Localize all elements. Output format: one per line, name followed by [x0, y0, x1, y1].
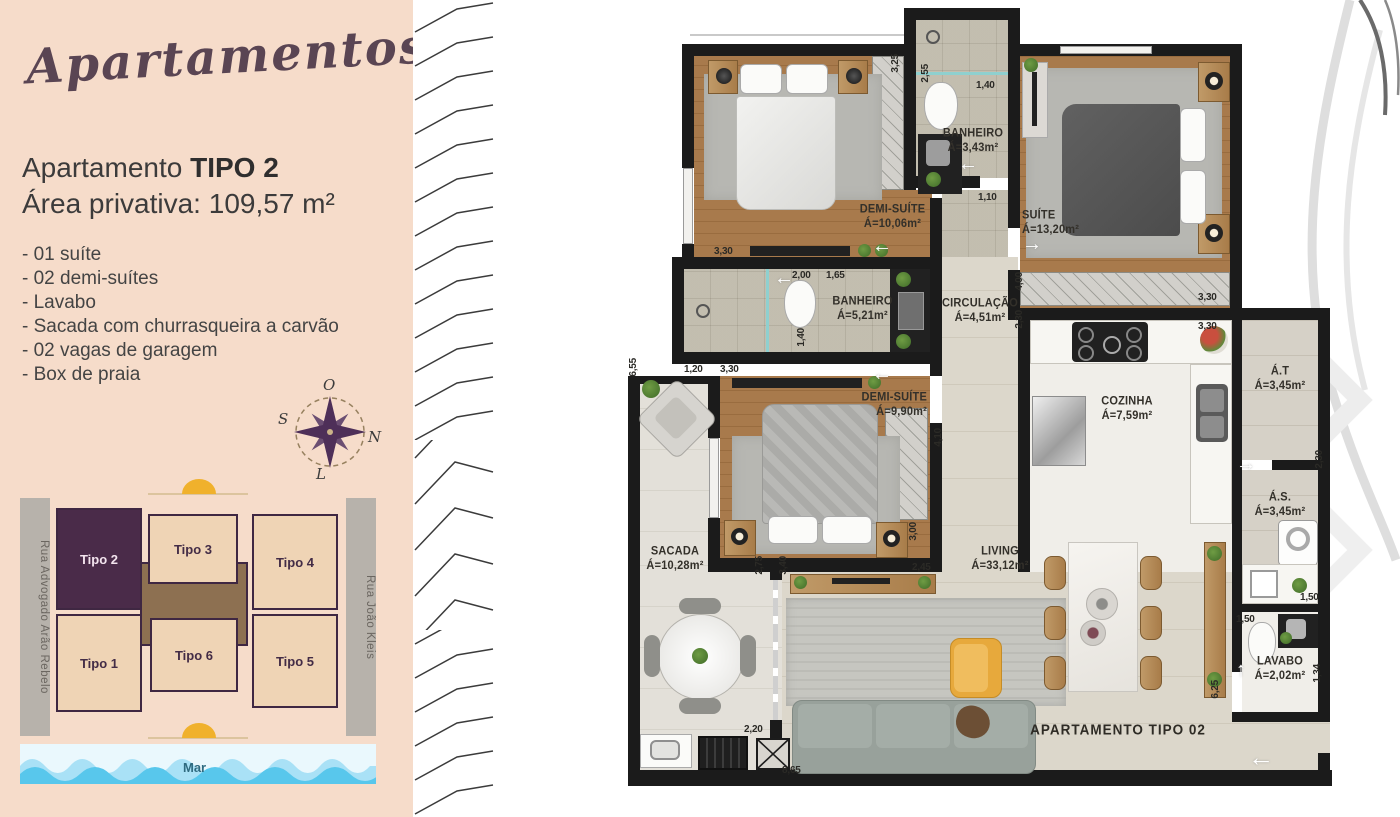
street-right-label: Rua João Kleis — [346, 498, 376, 736]
washer-door-icon — [1286, 527, 1310, 551]
door-arrow-icon: → — [1236, 454, 1256, 474]
pillow — [1180, 108, 1206, 162]
room-label-demi-suite-1: DEMI-SUÍTE Á=10,06m² — [850, 202, 935, 231]
plant-icon — [794, 576, 807, 589]
building-label: Tipo 5 — [276, 654, 314, 669]
sink-basin — [1200, 389, 1224, 412]
wall — [1232, 712, 1330, 722]
room-area: Á=4,51m² — [938, 311, 1022, 326]
wall — [708, 376, 720, 438]
dim-label: 3,25 — [890, 54, 901, 73]
tv-rack — [790, 574, 936, 594]
chair — [740, 635, 756, 677]
dim-label: 4,10 — [933, 428, 944, 447]
dim-label: 1,50 — [1236, 614, 1255, 625]
room-label-demi-suite-2: DEMI-SUÍTE Á=9,90m² — [845, 390, 927, 419]
lamp-icon — [1205, 224, 1223, 242]
room-name: LAVABO — [1238, 654, 1322, 669]
bed — [736, 96, 836, 210]
wall — [1008, 308, 1330, 320]
shower-glass — [766, 269, 769, 352]
bowl-icon — [1086, 588, 1118, 620]
chair — [1140, 606, 1162, 640]
room-area: Á=7,59m² — [1072, 409, 1182, 424]
compass-rose-icon — [285, 387, 375, 477]
dim-label: 1,34 — [1312, 664, 1323, 683]
dim-label: 2,75 — [754, 556, 765, 575]
wall — [1318, 753, 1330, 786]
plant-icon — [896, 272, 911, 287]
wall — [682, 257, 932, 269]
page: Apartamentos Apartamento TIPO 2 Área pri… — [0, 0, 1400, 817]
building-tipo-3[interactable]: Tipo 3 — [148, 514, 238, 584]
feature-list: - 01 suíte - 02 demi-suítes - Lavabo - S… — [22, 243, 339, 387]
plant-icon — [1292, 578, 1307, 593]
dim-label: 2,55 — [920, 64, 931, 83]
dim-label: 1,50 — [1300, 592, 1319, 603]
compass-east-label: L — [316, 465, 326, 483]
dim-label: 3,30 — [720, 364, 739, 375]
room-name: BANHEIRO — [815, 294, 910, 309]
street-left-label: Rua Advogado Arão Rebelo — [20, 498, 50, 736]
tv-icon — [832, 578, 890, 584]
wall — [904, 8, 916, 190]
pillow — [822, 516, 872, 544]
chair — [679, 698, 721, 714]
wall — [682, 44, 916, 56]
rug — [786, 598, 1066, 706]
plant-icon — [896, 334, 911, 349]
chair — [1044, 606, 1066, 640]
feature-item: - Lavabo — [22, 291, 339, 315]
wall — [904, 8, 1020, 20]
floor-plan: ← ← → ← ← → ↑ ← BANHEIRO Á=3,43m² DEMI-S… — [620, 8, 1336, 790]
room-name: DEMI-SUÍTE — [850, 202, 935, 217]
pillow — [768, 516, 818, 544]
entry-arrow-icon: ← — [1248, 744, 1274, 770]
dim-label: 6,25 — [1210, 680, 1221, 699]
room-label-area-servico: Á.S. Á=3,45m² — [1242, 490, 1318, 519]
room-name: Á.S. — [1242, 490, 1318, 505]
compass-south-label: S — [278, 410, 288, 428]
building-tipo-1[interactable]: Tipo 1 — [56, 614, 142, 712]
window — [683, 168, 693, 244]
pillow — [1180, 170, 1206, 224]
room-label-banheiro-2: BANHEIRO Á=5,21m² — [815, 294, 910, 323]
floor-hall — [942, 190, 1008, 257]
dim-label: 6,55 — [628, 358, 639, 377]
room-area: Á=10,06m² — [850, 217, 935, 232]
plant-icon — [926, 172, 941, 187]
left-panel: Apartamentos Apartamento TIPO 2 Área pri… — [0, 0, 413, 817]
tv-sideboard — [750, 246, 850, 256]
room-label-circulacao: CIRCULAÇÃO Á=4,51m² — [938, 296, 1022, 325]
room-area: Á=33,12m² — [958, 559, 1042, 574]
room-name: CIRCULAÇÃO — [938, 296, 1022, 311]
chair — [1140, 656, 1162, 690]
laundry-sink-icon — [1250, 570, 1278, 598]
room-name: LIVING — [958, 544, 1042, 559]
bowl-icon — [1080, 620, 1106, 646]
shower-icon — [926, 30, 940, 44]
armchair-seat — [954, 644, 988, 692]
room-name: Á.T — [1242, 364, 1318, 379]
lamp-icon — [883, 530, 900, 547]
chair — [1044, 656, 1066, 690]
compass-west-label: O — [323, 376, 335, 394]
pillow — [786, 64, 828, 94]
feature-item: - Sacada com churrasqueira a carvão — [22, 315, 339, 339]
window — [709, 438, 719, 518]
private-area-subtitle: Área privativa: 109,57 m² — [22, 188, 335, 220]
charcoal-grill-icon — [698, 736, 748, 770]
title-bold: TIPO 2 — [190, 152, 279, 183]
lamp-icon — [846, 68, 862, 84]
building-label: Tipo 6 — [175, 648, 213, 663]
toilet-icon — [924, 82, 958, 130]
burner-icon — [1103, 336, 1121, 354]
building-label: Tipo 2 — [80, 552, 118, 567]
lamp-icon — [731, 528, 748, 545]
plant-icon — [692, 648, 708, 664]
tv-sideboard — [732, 378, 862, 388]
sea-label: Mar — [183, 760, 206, 775]
plant-icon — [1024, 58, 1038, 72]
room-area: Á=5,21m² — [815, 309, 910, 324]
plant-icon — [858, 244, 871, 257]
room-label-banheiro-1: BANHEIRO Á=3,43m² — [938, 126, 1008, 155]
bed — [762, 404, 878, 524]
feature-item: - 02 demi-suítes — [22, 267, 339, 291]
room-label-cozinha: COZINHA Á=7,59m² — [1072, 394, 1182, 423]
room-label-living: LIVING Á=33,12m² — [958, 544, 1042, 573]
lamp-icon — [716, 68, 732, 84]
room-area: Á=3,43m² — [938, 141, 1008, 156]
plant-icon — [642, 380, 660, 398]
room-label-suite: SUÍTE Á=13,20m² — [1022, 208, 1122, 237]
building-tipo-4[interactable]: Tipo 4 — [252, 514, 338, 610]
building-tipo-2[interactable]: Tipo 2 — [56, 508, 142, 610]
dim-label: 1,40 — [796, 328, 807, 347]
floor-entry — [1232, 722, 1330, 770]
wall — [1008, 198, 1020, 228]
wall — [628, 376, 708, 384]
room-area: Á=3,45m² — [1242, 379, 1318, 394]
dim-label: 3,40 — [778, 556, 789, 575]
dim-label: 2,20 — [744, 724, 763, 735]
wall — [1318, 308, 1330, 713]
dim-label: 2,00 — [792, 270, 811, 281]
burner-icon — [1126, 345, 1142, 361]
dim-label: 2,30 — [1014, 310, 1025, 329]
door-arrow-icon: ← — [872, 236, 892, 256]
wall — [708, 558, 938, 572]
burner-icon — [1126, 327, 1142, 343]
sofa-cushion — [798, 704, 872, 748]
chair — [644, 635, 660, 677]
window — [1060, 46, 1152, 54]
apartment-title: APARTAMENTO TIPO 02 — [1028, 721, 1208, 738]
chair — [1044, 556, 1066, 590]
wall — [1232, 470, 1242, 600]
room-label-area-tecnica: Á.T Á=3,45m² — [1242, 364, 1318, 393]
dim-label: 3,30 — [714, 246, 733, 257]
chair — [1140, 556, 1162, 590]
wall — [1018, 320, 1030, 572]
sofa-cushion — [876, 704, 950, 748]
room-name: SACADA — [632, 544, 718, 559]
wall — [1230, 44, 1242, 320]
dim-label: 1,10 — [978, 192, 997, 203]
lamp-icon — [1205, 72, 1223, 90]
roof-edge-line — [690, 34, 916, 36]
dim-label: 1,20 — [684, 364, 703, 375]
wall — [1232, 320, 1242, 460]
sun-icon — [182, 723, 216, 738]
dim-label: 1,40 — [976, 80, 995, 91]
bbq-sink-icon — [650, 740, 680, 760]
burner-icon — [1078, 345, 1094, 361]
dim-label: 2,30 — [1314, 450, 1325, 469]
door-arrow-icon: ← — [958, 154, 978, 174]
plant-icon — [1280, 632, 1292, 644]
street-right: Rua João Kleis — [346, 498, 376, 736]
tv-icon — [1032, 72, 1037, 126]
dim-label: 2,45 — [912, 562, 931, 573]
street-left: Rua Advogado Arão Rebelo — [20, 498, 50, 736]
dim-label: 8,65 — [782, 765, 801, 776]
dim-label: 1,65 — [826, 270, 845, 281]
room-name: COZINHA — [1072, 394, 1182, 409]
dim-label: 3,30 — [1198, 292, 1217, 303]
shower-icon — [696, 304, 710, 318]
building-label: Tipo 4 — [276, 555, 314, 570]
room-name: BANHEIRO — [938, 126, 1008, 141]
room-area: Á=9,90m² — [845, 405, 927, 420]
burner-icon — [1078, 327, 1094, 343]
building-label: Tipo 3 — [174, 542, 212, 557]
feature-item: - 01 suíte — [22, 243, 339, 267]
building-tipo-5[interactable]: Tipo 5 — [252, 614, 338, 708]
chair — [679, 598, 721, 614]
door-arrow-icon: ← — [774, 268, 794, 288]
room-area: Á=10,28m² — [632, 559, 718, 574]
wall — [672, 257, 684, 364]
room-label-sacada: SACADA Á=10,28m² — [632, 544, 718, 573]
page-title: Apartamento TIPO 2 — [22, 152, 279, 184]
compass-north-label: N — [368, 428, 381, 446]
sliding-door — [773, 580, 778, 720]
room-name: DEMI-SUÍTE — [845, 390, 927, 405]
sink-basin — [1200, 416, 1224, 438]
door-arrow-icon: ← — [872, 364, 892, 384]
title-regular: Apartamento — [22, 152, 190, 183]
brand-logo: Apartamentos — [25, 21, 387, 96]
room-area: Á=13,20m² — [1022, 223, 1122, 238]
dim-label: 3,30 — [1198, 321, 1217, 332]
room-area: Á=2,02m² — [1238, 669, 1322, 684]
wall — [1008, 8, 1020, 198]
room-area: Á=3,45m² — [1242, 505, 1318, 520]
dim-label: 4,00 — [1014, 272, 1025, 291]
wall — [682, 44, 694, 168]
room-name: SUÍTE — [1022, 208, 1122, 223]
feature-item: - 02 vagas de garagem — [22, 339, 339, 363]
building-tipo-6[interactable]: Tipo 6 — [150, 618, 238, 692]
room-label-lavabo: LAVABO Á=2,02m² — [1238, 654, 1322, 683]
plant-icon — [918, 576, 931, 589]
dim-label: 3,00 — [908, 522, 919, 541]
plant-icon — [1207, 546, 1222, 561]
pillow — [740, 64, 782, 94]
building-label: Tipo 1 — [80, 656, 118, 671]
zigzag-divider — [413, 0, 497, 817]
sun-icon — [182, 479, 216, 494]
feature-item: - Box de praia — [22, 363, 339, 387]
